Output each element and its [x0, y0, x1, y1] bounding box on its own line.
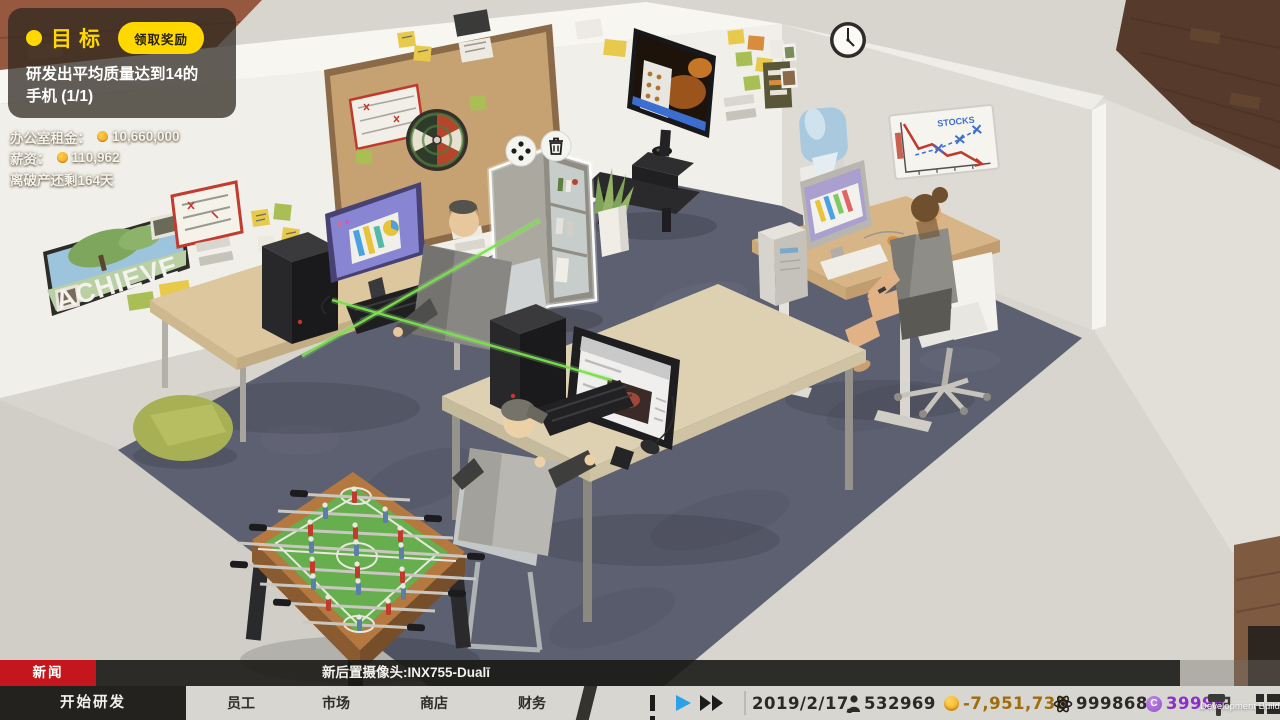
tab-employees[interactable]: 员工: [186, 686, 296, 720]
salary-label: 薪资：: [10, 148, 51, 168]
tab-market[interactable]: 市场: [296, 686, 376, 720]
tab-shop[interactable]: 商店: [394, 686, 474, 720]
population-icon: [845, 695, 862, 713]
finance-info: 办公室租金： 10,660,000 薪资： 110,962 离破产还剩164天: [10, 126, 180, 189]
salary-row: 薪资： 110,962: [10, 147, 180, 168]
goal-panel: 目标 领取奖励 研发出平均质量达到14的手机 (1/1): [8, 8, 236, 118]
menu-grid-button[interactable]: [1256, 693, 1280, 715]
tab-start-research[interactable]: 开始研发: [0, 686, 186, 720]
salary-value: 110,962: [72, 150, 120, 165]
coin-icon: [57, 152, 68, 163]
research-value: 999868: [1076, 694, 1148, 713]
toolbar-divider: [576, 686, 597, 720]
news-bar[interactable]: 新闻 新后置摄像头:INX755-Dualī: [0, 660, 1280, 686]
premium-coin-icon: C: [1146, 696, 1162, 712]
fridge-delete-button[interactable]: [541, 131, 571, 161]
claim-reward-button[interactable]: 领取奖励: [118, 22, 204, 54]
bankruptcy-row: 离破产还剩164天: [10, 168, 180, 189]
rent-value: 10,660,000: [112, 129, 180, 144]
population-value: 532969: [864, 694, 936, 713]
news-ticker-tail: [1180, 660, 1280, 686]
paint-roller-button[interactable]: [1206, 692, 1232, 717]
dartboard: [406, 109, 468, 171]
fridge-move-button[interactable]: [506, 136, 536, 166]
play-button[interactable]: [676, 695, 691, 711]
goal-bullet-icon: [26, 30, 42, 46]
right-wall-edge: [1092, 103, 1106, 330]
goal-title: 目标: [51, 23, 107, 53]
pause-button[interactable]: [650, 695, 664, 711]
news-label: 新闻: [0, 660, 96, 686]
research-atom-icon: [1053, 694, 1073, 714]
coin-icon: [97, 131, 108, 142]
game-date: 2019/2/17: [752, 694, 849, 713]
bankruptcy-text: 离破产还剩164天: [10, 169, 114, 189]
stocks-poster: STOCKS: [889, 105, 999, 180]
money-coin-icon: [944, 696, 959, 711]
rent-label: 办公室租金：: [10, 127, 91, 147]
bottom-toolbar: 开始研发 员工 市场 商店 财务 2019/2/17 532969 -7,951…: [0, 686, 1280, 720]
tab-finance[interactable]: 财务: [492, 686, 572, 720]
fast-forward-button[interactable]: [700, 695, 726, 711]
toolbar-separator: [744, 691, 746, 715]
news-ticker-text: 新后置摄像头:INX755-Dualī: [256, 660, 556, 686]
office-rent-row: 办公室租金： 10,660,000: [10, 126, 180, 147]
goal-description: 研发出平均质量达到14的手机 (1/1): [26, 64, 210, 107]
wall-clock: [830, 22, 866, 58]
game-viewport: ACHIEVE: [0, 0, 1280, 720]
